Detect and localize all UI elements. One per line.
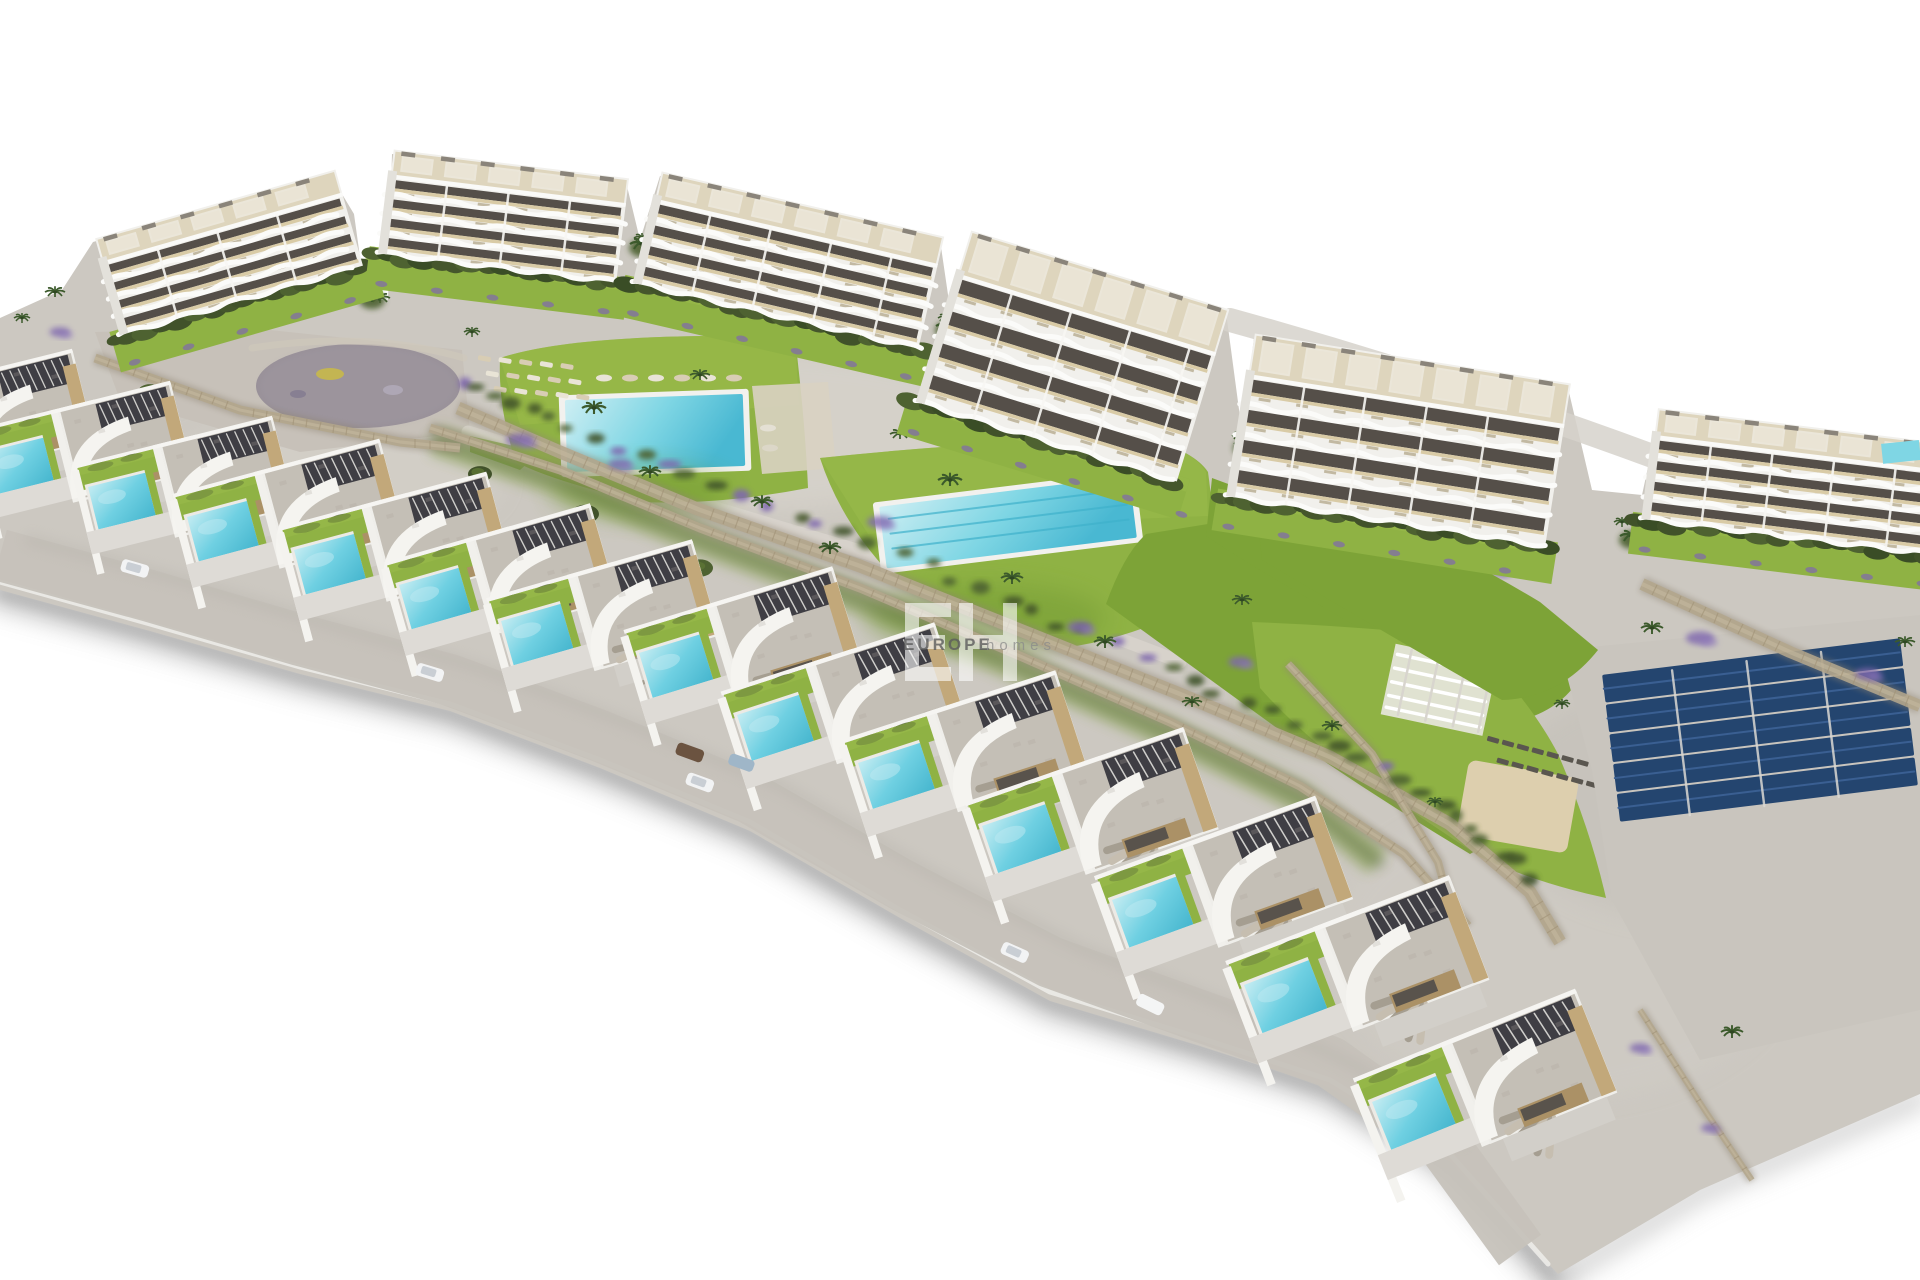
svg-text:homes: homes xyxy=(986,637,1056,654)
svg-text:EUROPE: EUROPE xyxy=(903,635,993,654)
